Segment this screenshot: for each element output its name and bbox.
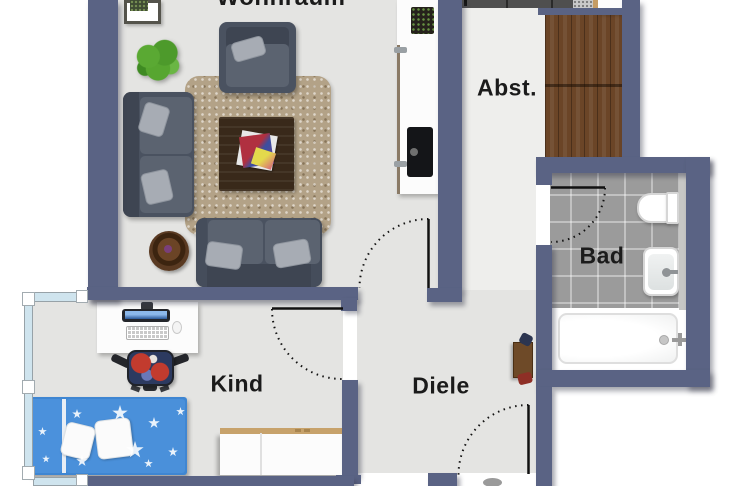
monitor-screen	[125, 311, 167, 319]
toilet-bowl	[637, 193, 669, 223]
window	[24, 392, 33, 468]
wall-segment	[536, 157, 710, 173]
bed	[28, 397, 187, 475]
window-post	[22, 292, 35, 306]
kitchen-sink-drain	[410, 148, 418, 156]
window-post	[76, 474, 88, 486]
mouse	[172, 321, 182, 334]
bathroom-wall-highlight	[679, 173, 686, 310]
entry-door-mat	[483, 478, 502, 486]
room-label-kids-room: Kind	[210, 371, 263, 398]
bed-head-section	[30, 399, 62, 473]
wall-segment	[428, 473, 457, 486]
sofa-left-backrest	[123, 92, 139, 217]
room-label-bathroom: Bad	[580, 243, 625, 270]
kitchen-faucet-mark	[464, 0, 467, 6]
window-post	[22, 466, 35, 480]
sideboard-divider	[260, 433, 262, 475]
room-label-hallway: Diele	[412, 373, 469, 400]
window	[33, 477, 78, 486]
wall-segment	[88, 0, 118, 300]
cabinet-handle	[394, 47, 407, 53]
keyboard	[126, 326, 169, 340]
window-post	[76, 290, 88, 303]
window	[24, 305, 33, 382]
room-label-storage: Abst.	[477, 75, 537, 102]
wall-segment	[536, 245, 552, 377]
kitchen-planter	[411, 7, 434, 34]
room-label-living-room: Wohnraum	[217, 0, 346, 12]
cabinet-handle	[394, 161, 407, 167]
toilet-tank	[666, 192, 679, 224]
plant	[133, 38, 181, 84]
wall-segment	[342, 380, 358, 476]
gaming-chair-seat	[127, 350, 174, 386]
wall-segment	[427, 288, 462, 302]
wall-segment	[686, 157, 710, 387]
kitchen-worktop-divider	[506, 0, 508, 8]
wall-segment	[87, 476, 354, 486]
wall-segment	[87, 287, 358, 300]
wall-segment	[341, 298, 357, 311]
wall-segment	[622, 0, 640, 160]
window-post	[22, 380, 35, 394]
sideboard-handle	[304, 429, 310, 432]
kitchen-worktop-divider	[551, 0, 553, 8]
wall-segment	[536, 157, 552, 185]
wall-segment	[438, 0, 462, 290]
picture-frame-art	[130, 0, 148, 11]
sideboard-top-trim	[220, 428, 342, 434]
bed-pillow	[94, 417, 134, 460]
kitchen-counter-edge	[397, 45, 400, 194]
wall-segment	[536, 387, 552, 486]
sideboard-handle	[295, 429, 301, 432]
window	[33, 292, 78, 302]
kitchen-worktop-granite	[573, 0, 593, 8]
floor-plan: Wohnraum Abst. Bad Kind Diele	[0, 0, 730, 486]
kitchen-worktop	[458, 0, 573, 8]
storage-wood-divider	[545, 84, 622, 87]
storage-corridor-floor	[462, 0, 536, 290]
bathtub-drain	[659, 335, 669, 345]
washbasin-faucet-spout	[669, 270, 678, 274]
bathtub-faucet-handle	[678, 333, 682, 346]
side-table-decor	[164, 245, 172, 253]
sofa-bottom-pillow	[204, 241, 243, 271]
sideboard	[220, 433, 342, 475]
wall-segment	[538, 8, 622, 15]
wall-segment	[536, 370, 710, 387]
